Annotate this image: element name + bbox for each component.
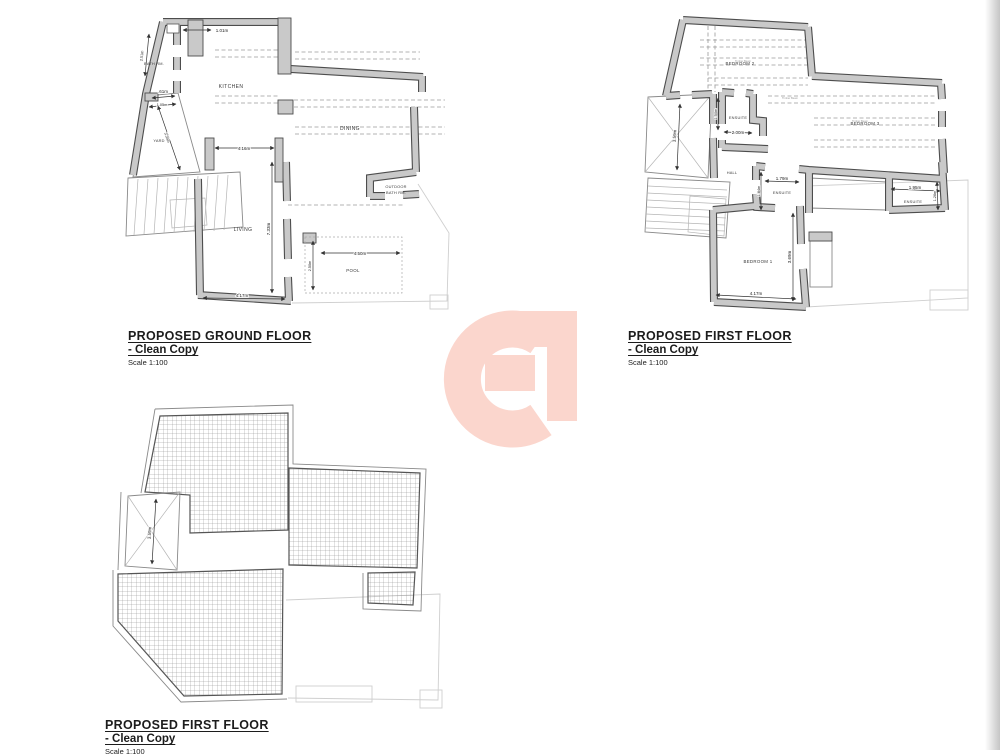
roof-hatch-1 <box>145 413 288 533</box>
dim-pool-length: 4.50m <box>354 251 367 256</box>
window <box>167 24 179 33</box>
room-label-ensuite-right: ENSUITE <box>904 199 922 204</box>
beam-note: Timber Beam <box>782 96 799 100</box>
terrace-hatch <box>809 178 888 210</box>
small-hatch <box>810 241 832 287</box>
watermark-logo <box>429 298 591 460</box>
dim-ensuite-right-width: 1.95m <box>909 185 922 190</box>
room-label-hall: HALL <box>727 170 738 175</box>
dim-ensuite2-height: 1.50m <box>714 109 718 120</box>
page-edge-shadow <box>985 0 1000 750</box>
ground-floor-scale: Scale 1:100 <box>128 358 311 367</box>
dim-bath-height: 2.51m <box>139 50 144 61</box>
roof-plan-scale: Scale 1:100 <box>105 747 269 756</box>
roof-plan-title-block: PROPOSED FIRST FLOOR - Clean Copy Scale … <box>105 718 269 756</box>
first-floor-title: PROPOSED FIRST FLOOR <box>628 329 792 343</box>
room-label-outdoor-bath-1: OUTDOOR <box>385 184 406 189</box>
roof-hatch-2 <box>289 468 420 568</box>
room-label-kitchen: KITCHEN <box>219 84 244 90</box>
first-floor-scale: Scale 1:100 <box>628 358 792 367</box>
dim-entry-width: 1.01m <box>216 28 229 33</box>
dim-ensuite-mid-width: 1.79m <box>776 176 789 181</box>
ground-floor-title-block: PROPOSED GROUND FLOOR - Clean Copy Scale… <box>128 329 311 367</box>
room-label-ensuite-mid: ENSUITE <box>773 190 791 195</box>
terrace-outline <box>292 184 449 303</box>
kitchen-island <box>278 100 293 114</box>
dim-shaft-height: 3.59m <box>147 526 153 539</box>
roof-plan-drawing: 3.59m <box>100 402 445 714</box>
room-label-pool: POOL <box>346 268 360 273</box>
room-label-yard: YARD <box>153 138 164 143</box>
dim-door-width: .61m <box>158 89 168 94</box>
roof-hatch-4 <box>368 572 415 605</box>
ground-floor-plan-drawing: 1.01m 2.51m .61m 1.05m 3.35m 4.16m 7.33m… <box>118 14 468 316</box>
first-floor-subtitle: - Clean Copy <box>628 344 792 356</box>
dim-shaft-height: 3.59m <box>672 129 678 142</box>
ground-floor-subtitle: - Clean Copy <box>128 344 311 356</box>
dim-pool-width: 2.50m <box>308 261 312 272</box>
dim-living-width: 4.17m <box>236 293 249 298</box>
dim-kitchen-opening: 4.16m <box>238 146 251 151</box>
dim-bedroom1-height: 3.69m <box>787 250 792 263</box>
room-label-bedroom2: BEDROOM 2 <box>725 61 754 66</box>
roof-plan-subtitle: - Clean Copy <box>105 733 269 745</box>
pool-outline <box>305 237 402 293</box>
room-label-bedroom1: BEDROOM 1 <box>743 259 772 264</box>
drawing-sheet: 1.01m 2.51m .61m 1.05m 3.35m 4.16m 7.33m… <box>0 0 1000 750</box>
roof-hatch-3 <box>118 569 283 696</box>
dim-ensuite2-width: 2.00m <box>732 130 745 135</box>
dim-ensuite-mid-height: 1.84m <box>757 186 761 197</box>
room-label-dining: DINING <box>340 126 360 132</box>
dim-bedroom1-width: 4.17m <box>750 291 763 296</box>
room-label-bedroom3: BEDROOM 3 <box>850 121 879 126</box>
first-floor-plan-drawing: Timber Beam Timber Beam Timber Beam 3.59… <box>628 14 978 326</box>
ground-floor-title: PROPOSED GROUND FLOOR <box>128 329 311 343</box>
dim-living-length: 7.33m <box>266 222 271 235</box>
room-label-outdoor-bath-2: BATH RM. <box>386 190 406 195</box>
room-label-ensuite2: ENSUITE <box>729 115 747 120</box>
terrace-outline <box>286 594 440 700</box>
roof-plan-title: PROPOSED FIRST FLOOR <box>105 718 269 732</box>
dim-ensuite-right-height: 1.26m <box>933 191 937 202</box>
beam-lines <box>700 26 936 147</box>
room-label-living: LIVING <box>234 227 253 233</box>
room-label-bath: BATH RM. <box>144 61 164 66</box>
first-floor-title-block: PROPOSED FIRST FLOOR - Clean Copy Scale … <box>628 329 792 367</box>
